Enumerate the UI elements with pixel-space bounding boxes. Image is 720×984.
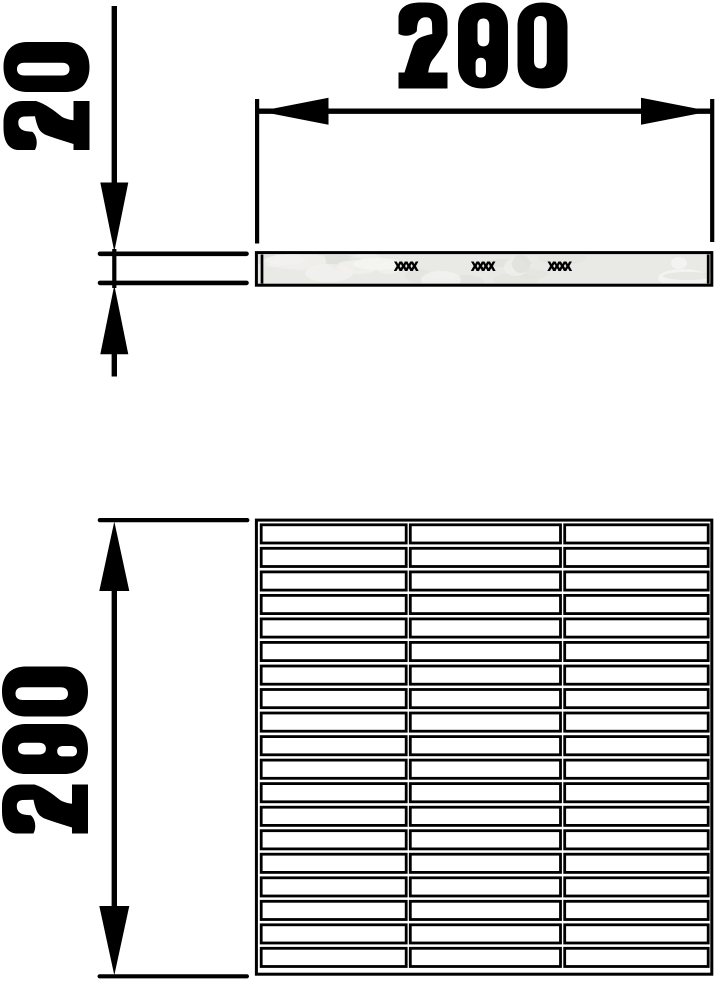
svg-text:XXXX: XXXX <box>472 261 496 274</box>
svg-text:XXXX: XXXX <box>395 261 419 274</box>
svg-text:XXXX: XXXX <box>548 261 572 274</box>
